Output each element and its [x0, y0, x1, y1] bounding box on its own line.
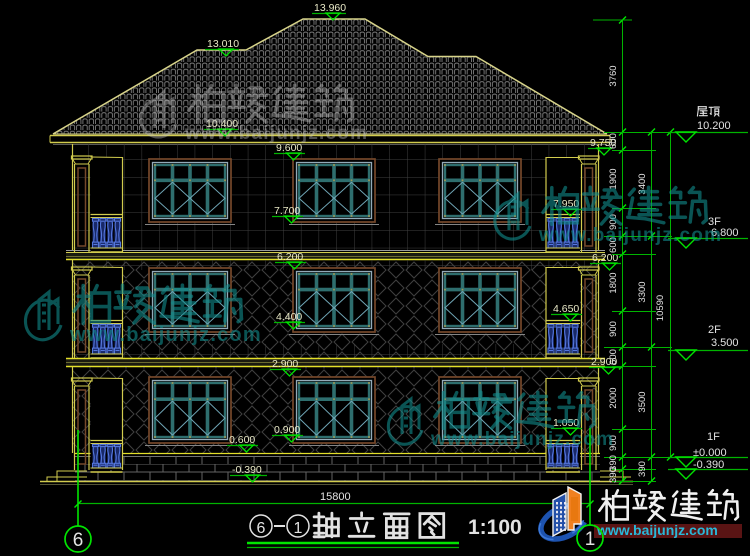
svg-text:900: 900	[608, 321, 619, 337]
svg-text:2.900: 2.900	[272, 358, 298, 370]
svg-text:6: 6	[257, 520, 266, 537]
svg-text:13.010: 13.010	[207, 38, 239, 50]
svg-text:600: 600	[608, 349, 619, 365]
svg-text:3760: 3760	[608, 65, 619, 86]
svg-text:3500: 3500	[637, 391, 648, 412]
svg-text:390: 390	[637, 461, 648, 477]
svg-text:4.650: 4.650	[553, 303, 579, 315]
svg-text:1F: 1F	[707, 431, 720, 443]
svg-text:1900: 1900	[608, 168, 619, 189]
svg-text:7.700: 7.700	[274, 205, 300, 217]
svg-text:www.baijunjz.com: www.baijunjz.com	[538, 225, 722, 246]
svg-text:±0.000: ±0.000	[693, 447, 727, 459]
svg-text:3.500: 3.500	[711, 337, 739, 349]
svg-text:2000: 2000	[608, 387, 619, 408]
svg-text:-0.390: -0.390	[232, 464, 262, 476]
svg-text:6.200: 6.200	[277, 251, 303, 263]
svg-text:0.900: 0.900	[274, 424, 300, 436]
svg-text:600: 600	[608, 133, 619, 149]
svg-text:-0.390: -0.390	[693, 459, 724, 471]
svg-text:0.600: 0.600	[229, 434, 255, 446]
svg-text:www.baijunjz.com: www.baijunjz.com	[596, 522, 718, 538]
svg-text:3300: 3300	[637, 281, 648, 302]
svg-text:13.960: 13.960	[314, 2, 346, 14]
svg-text:2F: 2F	[708, 324, 721, 336]
svg-text:1:100: 1:100	[468, 516, 522, 539]
svg-text:1: 1	[294, 520, 303, 537]
svg-text:www.baijunjz.com: www.baijunjz.com	[184, 123, 368, 144]
svg-text:4.400: 4.400	[276, 311, 302, 323]
svg-text:www.baijunjz.com: www.baijunjz.com	[69, 324, 262, 346]
svg-text:390: 390	[608, 467, 619, 483]
svg-text:1800: 1800	[608, 272, 619, 293]
svg-text:6: 6	[73, 530, 84, 551]
svg-text:15800: 15800	[320, 491, 351, 503]
svg-text:10.200: 10.200	[697, 120, 731, 132]
svg-text:1: 1	[585, 529, 596, 550]
svg-text:www.baijunjz.com: www.baijunjz.com	[430, 429, 614, 450]
svg-text:10590: 10590	[655, 295, 666, 321]
